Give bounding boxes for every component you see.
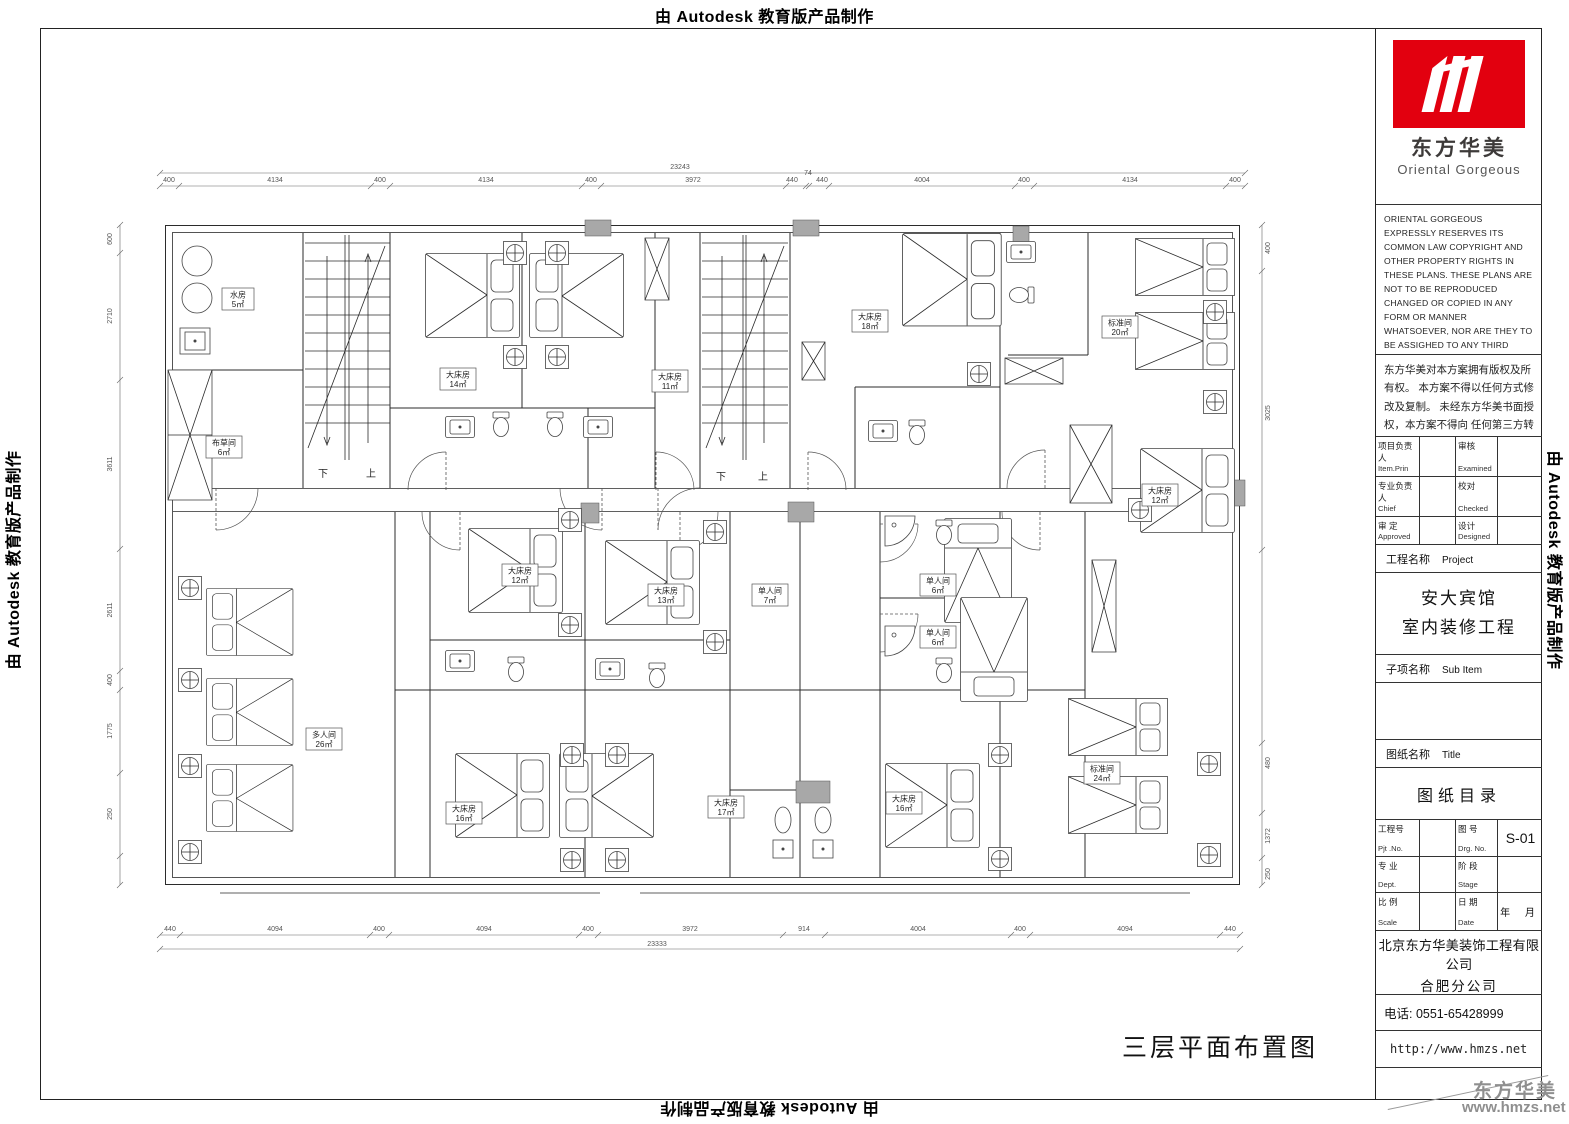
svg-text:6㎡: 6㎡: [932, 586, 944, 595]
svg-text:12㎡: 12㎡: [1152, 496, 1169, 505]
svg-text:400: 400: [374, 177, 386, 184]
logo-m-icon: [1420, 54, 1498, 114]
personnel-table: 项目负责人Item.Prin 审核Examined 专业负责人Chief 校对C…: [1376, 437, 1542, 545]
svg-text:23243: 23243: [670, 164, 690, 171]
svg-text:2611: 2611: [107, 602, 114, 617]
svg-text:17㎡: 17㎡: [718, 808, 735, 817]
company-logo: 东方华美 Oriental Gorgeous: [1376, 28, 1542, 205]
svg-text:400: 400: [107, 674, 114, 686]
svg-text:标准间: 标准间: [1090, 764, 1114, 774]
autodesk-watermark-bottom: 由 Autodesk 教育版产品制作: [660, 1098, 879, 1122]
svg-text:16㎡: 16㎡: [456, 814, 473, 823]
logo-name-en: Oriental Gorgeous: [1376, 162, 1542, 177]
svg-text:400: 400: [1014, 926, 1026, 933]
cad-sheet: 由 Autodesk 教育版产品制作 由 Autodesk 教育版产品制作 由 …: [0, 0, 1569, 1124]
room-label: 大床房16㎡: [886, 792, 922, 814]
svg-text:440: 440: [164, 926, 176, 933]
svg-text:单人间: 单人间: [926, 628, 950, 638]
table-row: 专业负责人Chief 校对Checked: [1376, 477, 1542, 517]
svg-text:6㎡: 6㎡: [932, 638, 944, 647]
corner-brand-url: www.hmzs.net: [1462, 1099, 1566, 1116]
autodesk-watermark-left: 由 Autodesk 教育版产品制作: [0, 400, 24, 720]
svg-text:1372: 1372: [1265, 828, 1272, 844]
svg-text:布草间: 布草间: [212, 438, 236, 448]
svg-text:440: 440: [1224, 926, 1236, 933]
svg-text:250: 250: [107, 808, 114, 820]
svg-text:水房: 水房: [230, 290, 246, 300]
svg-text:16㎡: 16㎡: [896, 804, 913, 813]
svg-text:914: 914: [798, 926, 810, 933]
svg-text:大床房: 大床房: [858, 312, 882, 322]
project-label: 工程名称Project: [1376, 545, 1542, 573]
floor-plan: 23243 400 4134 400 4134 400 3972 440 74 …: [40, 28, 1375, 1100]
svg-text:14㎡: 14㎡: [450, 380, 467, 389]
svg-text:440: 440: [786, 177, 798, 184]
svg-text:2710: 2710: [107, 308, 114, 324]
room-label: 多人间26㎡: [306, 728, 342, 750]
subitem-value: [1376, 683, 1542, 740]
svg-text:400: 400: [585, 177, 597, 184]
svg-text:大床房: 大床房: [446, 370, 470, 380]
room-label: 大床房12㎡: [1142, 484, 1178, 506]
logo-name-cn: 东方华美: [1376, 132, 1542, 162]
svg-text:18㎡: 18㎡: [862, 322, 879, 331]
svg-text:440: 440: [816, 177, 828, 184]
svg-text:400: 400: [582, 926, 594, 933]
room-label: 大床房12㎡: [502, 564, 538, 586]
date-value: 年 月: [1498, 893, 1542, 930]
svg-text:下: 下: [318, 469, 328, 480]
copyright-english: ORIENTAL GORGEOUS EXPRESSLY RESERVES ITS…: [1376, 205, 1542, 355]
svg-text:3025: 3025: [1265, 405, 1272, 421]
svg-text:大床房: 大床房: [658, 372, 682, 382]
svg-text:74: 74: [804, 170, 812, 177]
staircase-1: 下 上: [305, 235, 390, 480]
table-row: 工程号Pjt .No. 图 号Drg. No. S-01: [1376, 820, 1542, 857]
svg-text:上: 上: [758, 471, 768, 483]
title-block: 东方华美 Oriental Gorgeous ORIENTAL GORGEOUS…: [1375, 28, 1542, 1100]
room-label: 大床房13㎡: [648, 584, 684, 606]
svg-text:单人间: 单人间: [926, 576, 950, 586]
svg-text:大床房: 大床房: [452, 804, 476, 814]
svg-text:4094: 4094: [476, 926, 492, 933]
svg-text:13㎡: 13㎡: [658, 596, 675, 605]
svg-text:250: 250: [1265, 868, 1272, 880]
company-info: 北京东方华美装饰工程有限公司 合肥分公司 安徽省合肥市马鞍山南路绿地赢海大厦B座…: [1376, 931, 1542, 995]
subitem-label: 子项名称Sub Item: [1376, 655, 1542, 683]
svg-text:12㎡: 12㎡: [512, 576, 529, 585]
table-row: 比 例Scale 日 期Date 年 月: [1376, 893, 1542, 930]
sheet-title: 图纸目录: [1376, 768, 1542, 820]
table-row: 审 定Approved 设计Designed: [1376, 517, 1542, 544]
svg-text:24㎡: 24㎡: [1094, 774, 1111, 783]
svg-text:4134: 4134: [267, 177, 283, 184]
project-name: 安大宾馆 室内装修工程: [1376, 573, 1542, 655]
svg-text:3972: 3972: [682, 926, 698, 933]
sheet-title-label: 图纸名称Title: [1376, 740, 1542, 768]
room-label: 单人间6㎡: [920, 626, 956, 648]
room-label: 单人间6㎡: [920, 574, 956, 596]
svg-text:大床房: 大床房: [654, 586, 678, 596]
company-phone: 电话: 0551-65428999: [1376, 995, 1542, 1031]
svg-text:400: 400: [1229, 177, 1241, 184]
svg-text:20㎡: 20㎡: [1112, 328, 1129, 337]
logo-mark: [1393, 40, 1525, 128]
svg-text:标准间: 标准间: [1108, 318, 1132, 328]
autodesk-watermark-right: 由 Autodesk 教育版产品制作: [1544, 400, 1568, 720]
svg-text:6㎡: 6㎡: [218, 448, 230, 457]
room-label: 标准间24㎡: [1084, 762, 1120, 784]
svg-text:600: 600: [107, 233, 114, 245]
svg-text:4134: 4134: [478, 177, 494, 184]
svg-text:4004: 4004: [914, 177, 930, 184]
company-name: 北京东方华美装饰工程有限公司: [1376, 935, 1542, 973]
room-label: 大床房14㎡: [440, 368, 476, 390]
svg-text:多人间: 多人间: [312, 730, 336, 740]
autodesk-watermark-top: 由 Autodesk 教育版产品制作: [655, 3, 874, 27]
svg-text:大床房: 大床房: [892, 794, 916, 804]
numbers-table: 工程号Pjt .No. 图 号Drg. No. S-01 专 业Dept. 阶 …: [1376, 820, 1542, 931]
room-label: 布草间6㎡: [206, 436, 242, 458]
svg-text:400: 400: [1018, 177, 1030, 184]
table-row: 项目负责人Item.Prin 审核Examined: [1376, 437, 1542, 477]
svg-text:大床房: 大床房: [714, 798, 738, 808]
room-label: 大床房16㎡: [446, 802, 482, 824]
svg-text:400: 400: [163, 177, 175, 184]
drawing-title: 三层平面布置图: [1122, 1028, 1318, 1064]
svg-text:4094: 4094: [1117, 926, 1133, 933]
svg-text:1775: 1775: [107, 723, 114, 739]
svg-text:上: 上: [366, 468, 376, 480]
svg-text:大床房: 大床房: [1148, 486, 1172, 496]
svg-text:400: 400: [1265, 242, 1272, 254]
svg-text:4004: 4004: [910, 926, 926, 933]
svg-text:26㎡: 26㎡: [316, 740, 333, 749]
room-label: 水房5㎡: [222, 288, 254, 310]
svg-text:3611: 3611: [107, 456, 114, 471]
svg-text:480: 480: [1265, 757, 1272, 769]
copyright-chinese: 东方华美对本方案拥有版权及所有权。 本方案不得以任何方式修改及复制。 未经东方华…: [1376, 355, 1542, 437]
svg-text:3972: 3972: [685, 177, 701, 184]
svg-text:4094: 4094: [267, 926, 283, 933]
svg-text:400: 400: [373, 926, 385, 933]
company-branch: 合肥分公司: [1376, 975, 1542, 995]
room-label: 单人间7㎡: [752, 584, 788, 606]
room-label: 标准间20㎡: [1102, 316, 1138, 338]
staircase-2: 下 上: [702, 235, 788, 483]
svg-text:11㎡: 11㎡: [662, 382, 678, 391]
svg-text:单人间: 单人间: [758, 586, 782, 596]
svg-text:5㎡: 5㎡: [232, 300, 244, 309]
svg-text:23333: 23333: [647, 941, 667, 948]
svg-text:下: 下: [716, 472, 726, 483]
drawing-number: S-01: [1498, 820, 1542, 856]
room-label: 大床房11㎡: [652, 370, 688, 392]
room-label: 大床房17㎡: [708, 796, 744, 818]
svg-text:大床房: 大床房: [508, 566, 532, 576]
room-label: 大床房18㎡: [852, 310, 888, 332]
svg-text:4134: 4134: [1122, 177, 1138, 184]
company-url: http://www.hmzs.net: [1376, 1031, 1542, 1068]
table-row: 专 业Dept. 阶 段Stage: [1376, 857, 1542, 894]
svg-text:7㎡: 7㎡: [764, 596, 776, 605]
